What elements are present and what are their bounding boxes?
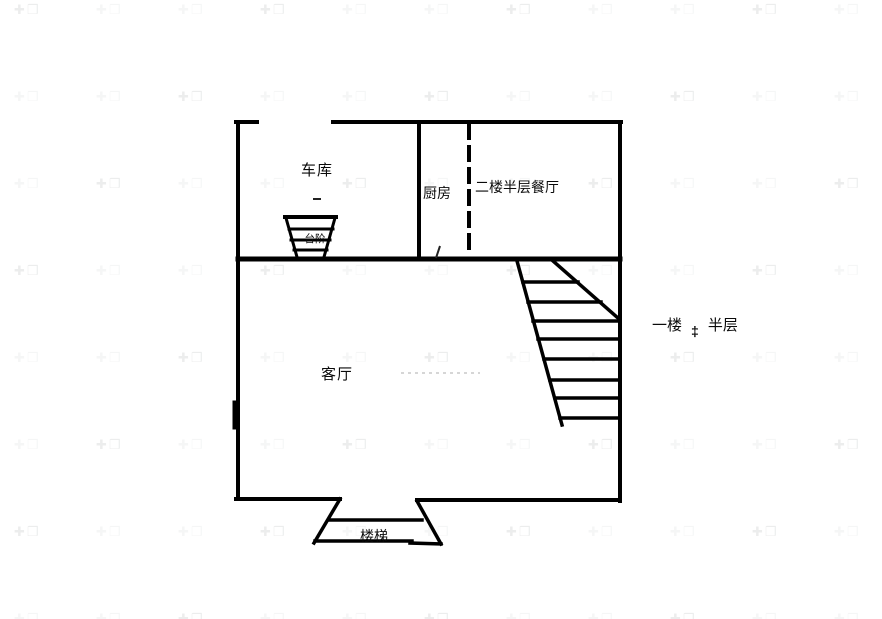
floor-plan-canvas: ✚❒✚❒✚❒✚❒✚❒✚❒✚❒✚❒✚❒✚❒✚❒✚❒✚❒✚❒✚❒✚❒✚❒✚❒✚❒✚❒… (0, 0, 882, 619)
outer-walls (236, 122, 621, 501)
floor-level-note: 一楼 ‡ 半层 (652, 318, 738, 335)
floor-plan-drawing (0, 0, 882, 619)
stair-corner-diagonal (553, 261, 618, 318)
label-living-room: 客厅 (321, 367, 353, 384)
label-first-floor: 一楼 (652, 318, 682, 335)
main-staircase (517, 261, 618, 425)
stair-stringer-diagonal (517, 261, 562, 425)
label-half-level: 半层 (708, 318, 738, 335)
stray-marks (313, 199, 480, 373)
entry-stairs-bottom-hook (410, 543, 441, 544)
label-steps: 台阶 (305, 233, 326, 244)
label-garage: 车库 (301, 163, 333, 180)
entry-stairs-right (417, 501, 441, 544)
label-stairs: 楼梯 (360, 529, 388, 544)
label-dining: 二楼半层餐厅 (475, 180, 559, 195)
label-kitchen: 厨房 (423, 186, 451, 201)
stray-tick (436, 246, 440, 258)
level-symbol-icon: ‡ (691, 324, 699, 339)
